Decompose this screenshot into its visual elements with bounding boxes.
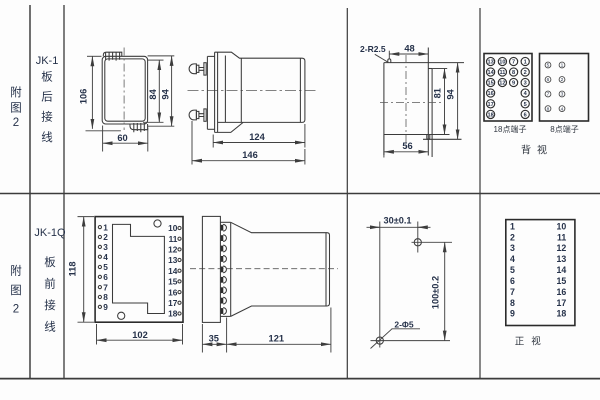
svg-text:11: 11 (169, 234, 178, 244)
svg-text:4: 4 (103, 252, 108, 262)
svg-text:60: 60 (117, 133, 127, 143)
svg-text:13: 13 (487, 60, 493, 66)
svg-text:10: 10 (557, 222, 567, 232)
svg-text:前: 前 (44, 277, 56, 291)
svg-text:1: 1 (561, 63, 564, 69)
svg-text:3: 3 (103, 242, 108, 252)
svg-text:3: 3 (510, 243, 515, 253)
svg-text:2: 2 (524, 70, 527, 76)
svg-text:10: 10 (499, 60, 505, 66)
svg-text:JK-1: JK-1 (36, 55, 59, 67)
svg-text:14: 14 (557, 265, 567, 275)
svg-text:18: 18 (168, 309, 178, 319)
svg-text:17: 17 (487, 102, 493, 108)
svg-text:16: 16 (168, 287, 178, 297)
svg-text:5: 5 (547, 63, 550, 69)
svg-text:8点端子: 8点端子 (550, 124, 578, 134)
svg-text:6: 6 (510, 276, 515, 286)
svg-text:14: 14 (168, 266, 178, 276)
svg-text:接: 接 (41, 111, 53, 124)
svg-text:106: 106 (78, 89, 88, 105)
svg-text:11: 11 (499, 70, 505, 76)
svg-text:8: 8 (547, 106, 550, 112)
svg-text:18: 18 (557, 309, 567, 319)
svg-text:81: 81 (433, 88, 443, 98)
svg-text:2: 2 (13, 304, 19, 316)
svg-text:4: 4 (510, 254, 515, 264)
svg-text:8: 8 (103, 292, 108, 302)
svg-text:正: 正 (515, 337, 525, 348)
svg-text:16: 16 (557, 287, 567, 297)
svg-text:8: 8 (512, 70, 515, 76)
svg-text:15: 15 (487, 81, 493, 87)
svg-text:18点端子: 18点端子 (494, 124, 527, 134)
svg-text:图: 图 (10, 284, 22, 297)
svg-text:2: 2 (561, 77, 564, 83)
svg-text:84: 84 (148, 88, 158, 99)
svg-text:2-R2.5: 2-R2.5 (360, 44, 386, 54)
svg-text:6: 6 (103, 272, 108, 282)
svg-text:5: 5 (524, 102, 527, 108)
svg-text:2: 2 (13, 117, 19, 129)
svg-text:图: 图 (10, 102, 22, 115)
svg-text:5: 5 (103, 262, 108, 272)
svg-text:2: 2 (103, 232, 108, 242)
svg-text:4: 4 (561, 106, 564, 112)
svg-text:1: 1 (103, 222, 108, 232)
svg-text:线: 线 (41, 130, 53, 144)
svg-text:板: 板 (44, 255, 56, 269)
svg-text:9: 9 (510, 309, 515, 319)
svg-text:30±0.1: 30±0.1 (383, 216, 411, 226)
svg-text:118: 118 (67, 262, 77, 277)
svg-text:18: 18 (487, 112, 493, 118)
svg-text:9: 9 (103, 302, 108, 312)
svg-text:102: 102 (132, 330, 148, 340)
svg-text:3: 3 (561, 92, 564, 98)
svg-text:15: 15 (557, 276, 567, 286)
svg-text:94: 94 (161, 88, 171, 99)
svg-text:13: 13 (557, 254, 567, 264)
svg-text:12: 12 (168, 245, 178, 255)
svg-text:附: 附 (10, 264, 22, 278)
svg-text:6: 6 (524, 112, 527, 118)
svg-text:背: 背 (521, 144, 531, 157)
svg-text:121: 121 (269, 333, 285, 343)
svg-text:48: 48 (404, 44, 414, 54)
svg-text:15: 15 (168, 277, 178, 287)
svg-text:线: 线 (44, 320, 56, 334)
svg-text:14: 14 (487, 70, 494, 76)
svg-text:94: 94 (446, 89, 456, 100)
svg-text:1: 1 (524, 60, 527, 66)
svg-text:2: 2 (510, 233, 515, 243)
svg-text:板: 板 (41, 70, 53, 84)
svg-text:7: 7 (547, 92, 550, 98)
svg-text:10: 10 (168, 223, 178, 233)
svg-text:13: 13 (168, 255, 178, 265)
svg-text:视: 视 (537, 144, 547, 157)
svg-text:1: 1 (510, 222, 515, 232)
svg-text:124: 124 (249, 132, 265, 142)
svg-text:3: 3 (524, 81, 527, 87)
svg-text:17: 17 (168, 298, 178, 308)
svg-text:35: 35 (209, 333, 219, 343)
svg-text:11: 11 (557, 233, 566, 243)
svg-text:7: 7 (510, 287, 515, 297)
svg-text:16: 16 (487, 91, 493, 97)
svg-text:后: 后 (41, 91, 53, 104)
svg-text:146: 146 (242, 150, 258, 160)
svg-text:56: 56 (402, 141, 412, 151)
svg-text:9: 9 (512, 81, 515, 87)
svg-text:7: 7 (103, 282, 108, 292)
svg-text:12: 12 (557, 243, 567, 253)
svg-text:5: 5 (510, 265, 515, 275)
svg-text:接: 接 (44, 299, 56, 312)
svg-text:7: 7 (512, 60, 515, 66)
svg-text:12: 12 (499, 81, 505, 87)
svg-text:2-Φ5: 2-Φ5 (394, 319, 414, 329)
svg-text:6: 6 (547, 77, 550, 83)
svg-text:100±0.2: 100±0.2 (431, 276, 441, 309)
svg-text:8: 8 (510, 298, 515, 308)
svg-text:JK-1Q: JK-1Q (34, 227, 66, 239)
svg-text:附: 附 (10, 85, 22, 99)
svg-text:17: 17 (557, 298, 567, 308)
svg-text:视: 视 (531, 336, 541, 348)
